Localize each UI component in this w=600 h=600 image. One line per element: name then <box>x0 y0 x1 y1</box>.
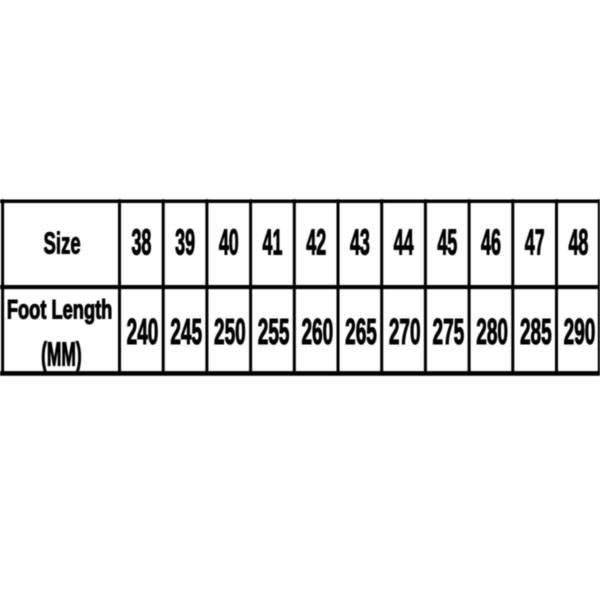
svg-text:245: 245 <box>170 311 202 352</box>
svg-text:280: 280 <box>476 311 508 352</box>
svg-text:41: 41 <box>263 222 283 263</box>
svg-text:265: 265 <box>345 311 377 352</box>
svg-text:48: 48 <box>568 222 588 263</box>
svg-text:Foot Length: Foot Length <box>7 295 113 325</box>
svg-text:47: 47 <box>525 222 545 263</box>
svg-text:45: 45 <box>437 222 457 263</box>
svg-text:260: 260 <box>301 311 333 352</box>
svg-text:275: 275 <box>433 311 465 352</box>
svg-text:(MM): (MM) <box>41 337 82 374</box>
svg-text:255: 255 <box>258 311 290 352</box>
svg-text:240: 240 <box>127 311 159 352</box>
svg-text:290: 290 <box>564 311 596 352</box>
svg-text:38: 38 <box>131 222 151 263</box>
svg-text:42: 42 <box>306 222 326 263</box>
svg-text:46: 46 <box>481 222 501 263</box>
svg-text:39: 39 <box>175 222 195 263</box>
svg-text:43: 43 <box>350 222 370 263</box>
svg-text:Size: Size <box>44 227 81 261</box>
svg-text:270: 270 <box>389 311 421 352</box>
svg-text:250: 250 <box>214 311 246 352</box>
svg-text:40: 40 <box>219 222 239 263</box>
svg-text:285: 285 <box>520 311 552 352</box>
svg-text:44: 44 <box>394 222 414 263</box>
